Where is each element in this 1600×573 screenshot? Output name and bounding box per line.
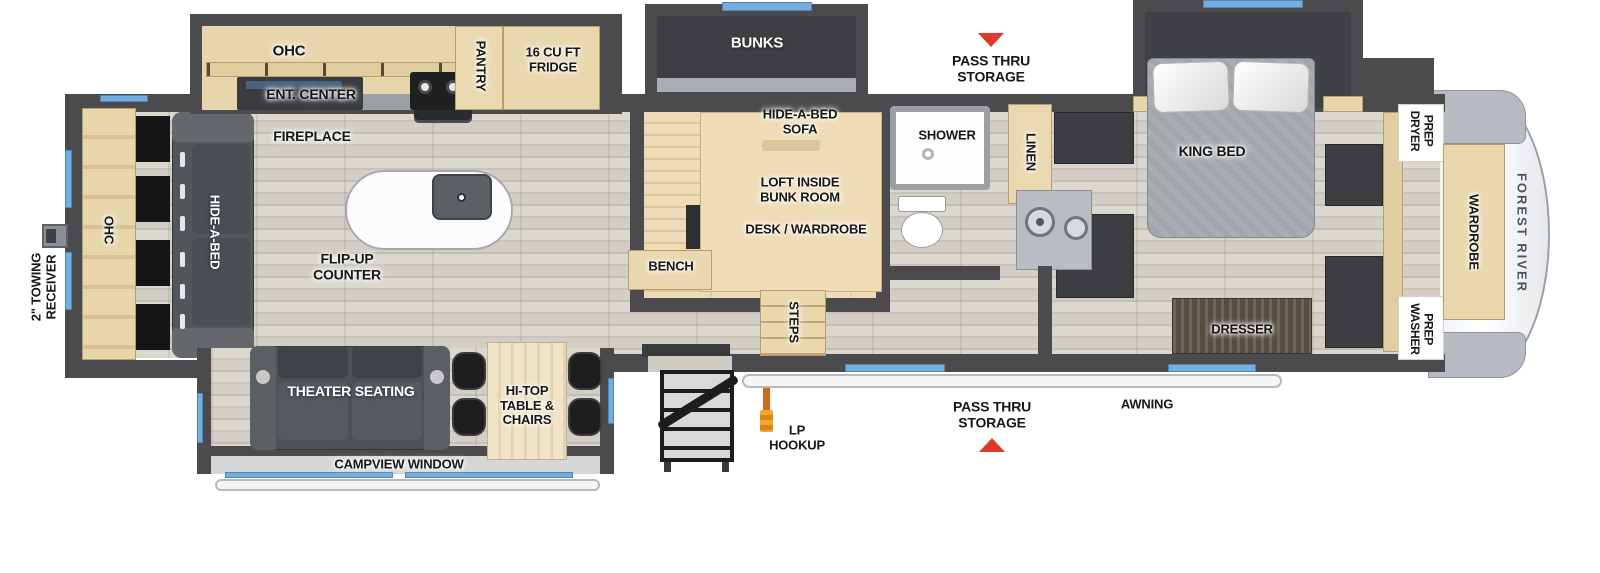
awning-bar — [742, 374, 1282, 388]
washer-prep-label: WASHER PREP — [1408, 303, 1435, 354]
slide-skirt-bar — [215, 479, 600, 491]
window-accent — [1168, 364, 1256, 372]
hitop-label: HI-TOP TABLE & CHAIRS — [500, 384, 554, 428]
bunkroom-left-wall — [630, 112, 644, 252]
desk-wardrobe-label: DESK / WARDROBE — [745, 223, 866, 238]
steps-label: STEPS — [786, 301, 801, 343]
king-slide-trim — [1323, 96, 1363, 112]
window-accent — [722, 2, 812, 11]
fridge-label: 16 CU FT FRIDGE — [526, 45, 581, 74]
pass-thru-arrow-top — [978, 33, 1004, 47]
pantry-label: PANTRY — [473, 41, 488, 92]
shower-drain — [922, 148, 934, 160]
bedroom-entry-wall — [1038, 266, 1052, 368]
pillow — [1232, 61, 1310, 114]
shower-label: SHOWER — [918, 129, 975, 144]
rear-shelf-opening — [136, 176, 170, 222]
island-faucet — [457, 193, 466, 202]
bottom-wall — [612, 354, 1445, 372]
bedroom-corner-cabinet — [1054, 112, 1134, 164]
rear-bottom-wall — [65, 360, 215, 378]
hide-a-bed-sofa-label: HIDE-A-BED SOFA — [763, 107, 838, 136]
window-accent — [100, 95, 148, 102]
dresser-label: DRESSER — [1211, 323, 1272, 338]
cooktop-burner — [418, 80, 432, 94]
towing-receiver-hitch-core — [46, 229, 56, 243]
bunkroom-tv-stand — [686, 205, 700, 249]
window-accent — [65, 150, 72, 208]
toilet-tank — [898, 196, 946, 212]
brand-label: FOREST RIVER — [1514, 173, 1529, 293]
floorplan-canvas: 2" TOWING RECEIVER OHC HIDE-A-BED OHC EN… — [0, 0, 1600, 573]
window-accent — [65, 252, 72, 310]
window-accent — [405, 472, 573, 478]
loft-label: LOFT INSIDE BUNK ROOM — [760, 175, 840, 204]
dryer-prep-label: DRYER PREP — [1408, 111, 1435, 152]
bench-label: BENCH — [648, 260, 693, 275]
shower — [890, 106, 990, 190]
bunk-sofa-cushion — [762, 140, 820, 151]
sofa-seam — [180, 314, 185, 329]
theater-seating-label: THEATER SEATING — [287, 384, 414, 400]
cupholder — [256, 370, 270, 384]
lp-hookup-label: LP HOOKUP — [769, 423, 825, 452]
rear-hide-a-bed-label: HIDE-A-BED — [207, 195, 222, 270]
linen-label: LINEN — [1023, 133, 1038, 171]
hitop-chair — [452, 398, 486, 436]
toilet-bowl — [901, 212, 943, 248]
pass-thru-bottom-label: PASS THRU STORAGE — [953, 399, 1031, 430]
rear-shelf-opening — [136, 116, 170, 162]
hitop-chair — [568, 398, 602, 436]
window-accent — [1203, 0, 1303, 8]
theater-seat-back — [352, 346, 422, 378]
awning-label: AWNING — [1121, 398, 1173, 413]
sofa-seam — [180, 284, 185, 299]
window-accent — [197, 393, 203, 443]
pillow — [1152, 61, 1230, 114]
sofa-seam — [180, 184, 185, 199]
ent-center-label: ENT. CENTER — [266, 87, 356, 103]
bedroom-chest-right-top — [1325, 144, 1383, 206]
bunkroom-bottom-wall — [630, 298, 762, 312]
theater-armrest — [250, 346, 276, 450]
fireplace-label: FIREPLACE — [273, 129, 351, 145]
window-accent — [225, 472, 393, 478]
vanity-sink-drain — [1036, 218, 1044, 226]
theater-armrest — [424, 346, 450, 450]
pass-thru-arrow-bottom — [979, 438, 1005, 452]
towing-receiver-label: 2" TOWING RECEIVER — [29, 253, 58, 321]
kitchen-ohc-label: OHC — [273, 44, 306, 61]
pass-thru-top-label: PASS THRU STORAGE — [952, 53, 1030, 84]
range-vent — [414, 110, 472, 123]
bedroom-chest-right-bottom — [1325, 256, 1383, 348]
theater-seat-back — [278, 346, 348, 378]
campview-window-label: CAMPVIEW WINDOW — [334, 458, 463, 473]
hitop-chair — [452, 352, 486, 390]
vanity-sink-small — [1064, 216, 1088, 240]
kitchen-slide-end-wall — [600, 14, 622, 114]
rear-ohc-label: OHC — [101, 216, 116, 244]
window-accent — [845, 364, 945, 372]
rear-shelf-opening — [136, 240, 170, 286]
flip-up-counter-label: FLIP-UP COUNTER — [313, 251, 381, 282]
sofa-seam — [180, 152, 185, 167]
bathroom-bottom-wall — [888, 266, 1000, 280]
hitop-chair — [568, 352, 602, 390]
king-bed-label: KING BED — [1179, 144, 1246, 160]
bunks-step-band — [657, 78, 856, 92]
entry-steps-leg — [722, 462, 729, 472]
wardrobe-label: WARDROBE — [1466, 194, 1481, 270]
entry-steps-leg — [664, 462, 671, 472]
window-accent — [608, 378, 614, 424]
sofa-seam — [180, 216, 185, 231]
cupholder — [430, 370, 444, 384]
bunks-label: BUNKS — [731, 36, 783, 53]
rear-shelf-opening — [136, 304, 170, 350]
sofa-armrest — [172, 112, 254, 142]
sofa-seam — [180, 252, 185, 267]
